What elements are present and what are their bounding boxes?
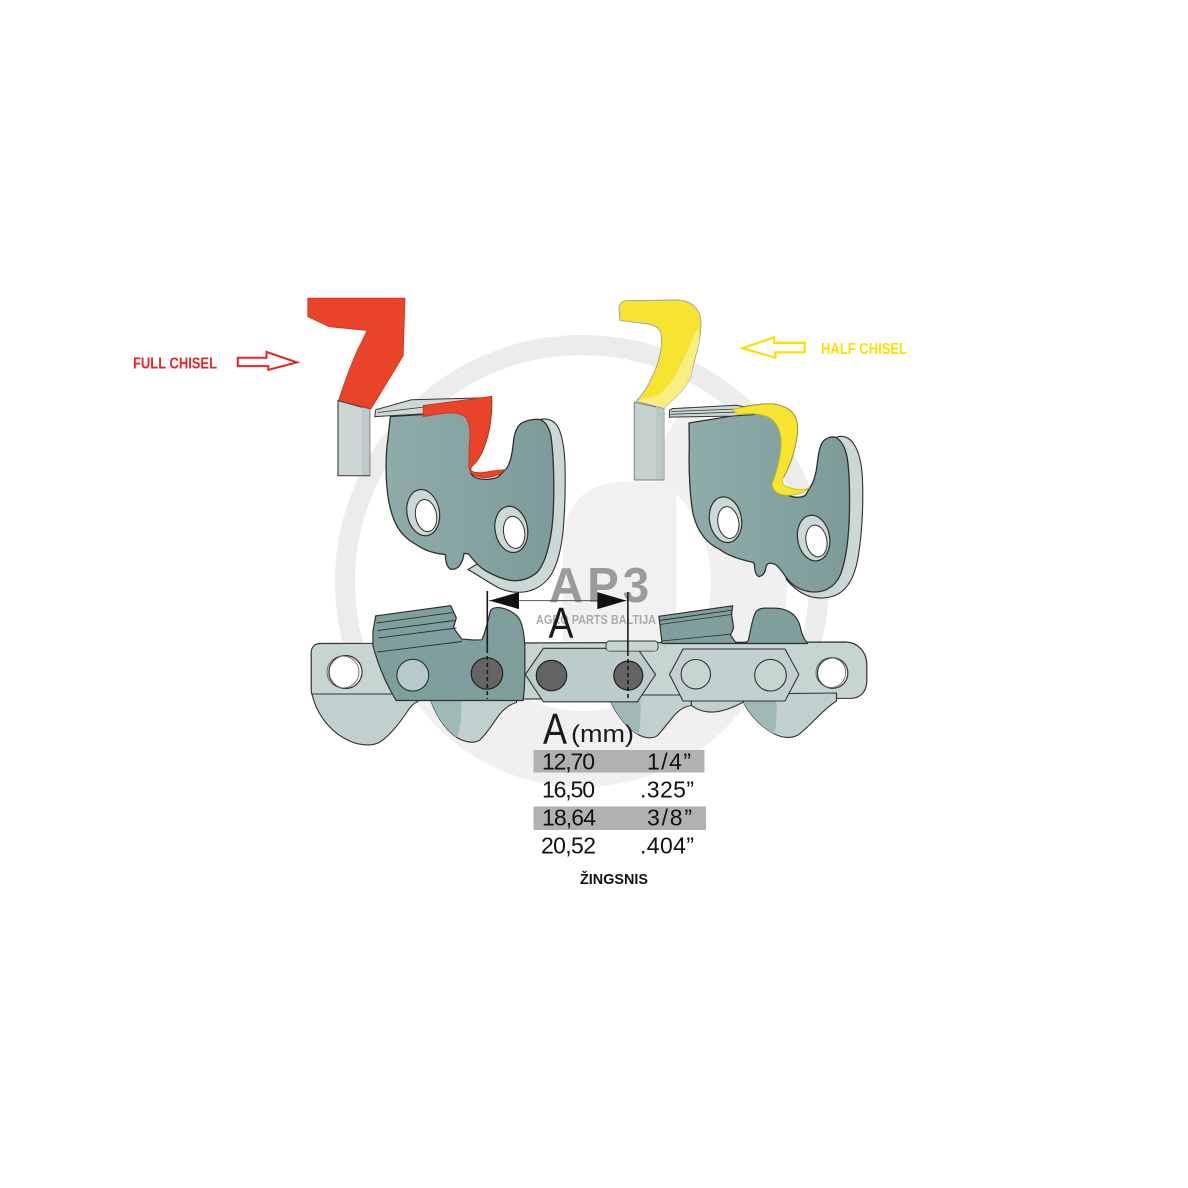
svg-text:FULL CHISEL: FULL CHISEL (133, 356, 217, 373)
svg-text:ŽINGSNIS: ŽINGSNIS (580, 870, 648, 888)
svg-text:A: A (549, 599, 575, 648)
svg-text:18,64: 18,64 (542, 805, 596, 831)
svg-text:3/8”: 3/8” (647, 805, 692, 831)
svg-text:.325”: .325” (640, 777, 694, 803)
svg-text:12,70: 12,70 (542, 749, 595, 775)
svg-text:HALF CHISEL: HALF CHISEL (821, 341, 907, 358)
svg-text:1/4”: 1/4” (647, 749, 691, 775)
svg-text:20,52: 20,52 (541, 833, 596, 859)
svg-text:16,50: 16,50 (542, 777, 595, 803)
svg-text:A: A (543, 705, 568, 754)
svg-text:.404”: .404” (640, 833, 694, 859)
svg-text:(mm): (mm) (571, 721, 634, 748)
